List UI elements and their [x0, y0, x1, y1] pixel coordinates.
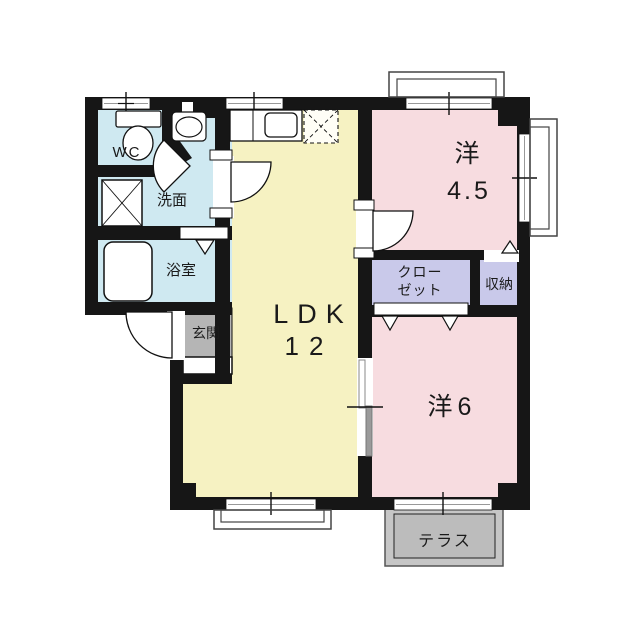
kitchen-counter [230, 110, 302, 141]
wall-closet-storage-divider [470, 250, 480, 317]
door-jamb [210, 208, 232, 218]
window-porch-frame-inner [221, 510, 324, 522]
door-jamb [354, 200, 374, 210]
door-jamb [354, 248, 374, 258]
label-genkan: 玄関 [192, 325, 220, 341]
window-bay-frame-outer [389, 72, 504, 97]
label-senmen: 洗面 [157, 192, 187, 209]
window-western45-right [512, 119, 557, 236]
pillar-bottom-right [498, 483, 530, 510]
wall-left-upper [85, 97, 98, 315]
kitchen-sink [265, 113, 297, 137]
floorplan-drawing: WC 洗面 浴室 玄関 LDK 12 洋 4.5 クロー ゼット 収納 洋6 テ… [0, 0, 640, 640]
pillar-bottom-left [170, 483, 196, 510]
bathroom-door-panel [180, 227, 228, 239]
bathtub [104, 242, 152, 301]
label-western6: 洋6 [428, 393, 477, 421]
door-jamb [210, 150, 232, 160]
washing-machine-pan [102, 180, 142, 226]
pillar-top-right [498, 97, 530, 126]
label-yokushitsu: 浴室 [166, 262, 196, 279]
label-closet-line2: ゼット [398, 282, 443, 298]
wall-wc-bottom [85, 165, 162, 177]
closet-door-panel [374, 303, 468, 315]
label-ldk: LDK [273, 299, 353, 329]
label-wc: WC [113, 144, 142, 161]
label-terrace: テラス [418, 533, 472, 550]
label-closet-line1: クロー [398, 264, 443, 280]
label-western45: 洋 [454, 140, 479, 168]
label-ldk-size: 12 [285, 331, 334, 361]
wall-entrance-step-edge [183, 374, 232, 384]
window-bay-frame-inner [397, 79, 496, 97]
window-western45-top [389, 72, 504, 115]
label-storage: 収納 [485, 276, 513, 292]
floorplan-page: WC 洗面 浴室 玄関 LDK 12 洋 4.5 クロー ゼット 収納 洋6 テ… [0, 0, 640, 640]
entrance-door-swing [126, 312, 172, 358]
refrigerator-space [304, 110, 338, 143]
window-porch-frame-outer [214, 510, 331, 529]
label-western45-size: 4.5 [447, 177, 491, 205]
wall-niche [182, 102, 193, 113]
vanity-sink [172, 112, 206, 141]
